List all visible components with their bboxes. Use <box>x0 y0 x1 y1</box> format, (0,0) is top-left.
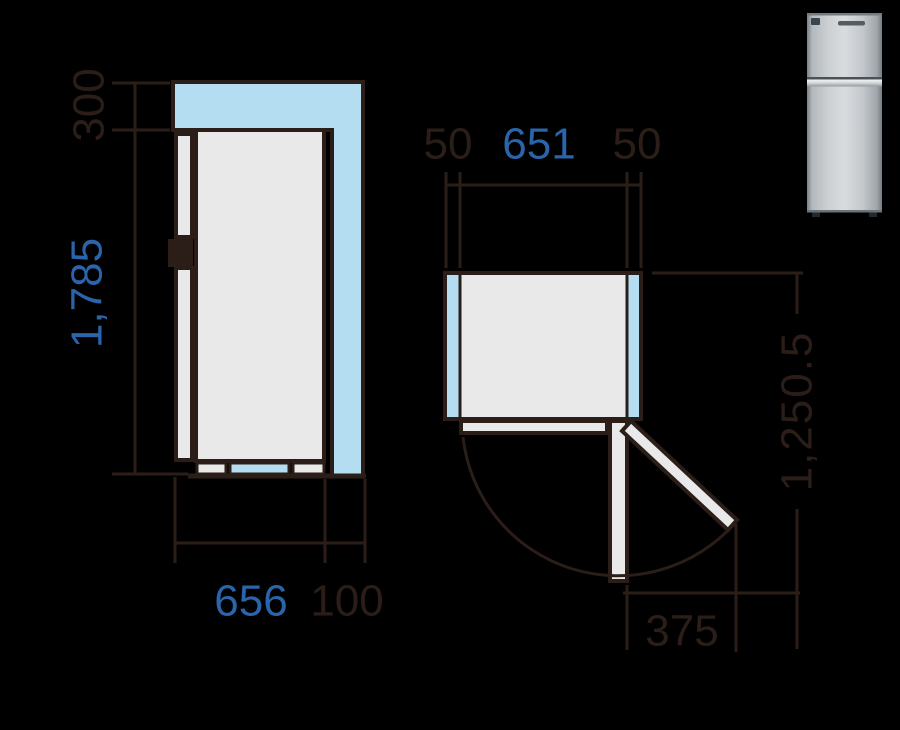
side-front-foot <box>197 463 226 474</box>
left-clearance-label: 50 <box>424 120 473 169</box>
photo-door-gap <box>807 77 882 80</box>
door-swing-label: 375 <box>645 607 718 656</box>
depth-door-open-label: 1,250.5 <box>773 331 822 492</box>
side-base-clearance <box>230 463 289 474</box>
photo-right-foot <box>869 212 877 217</box>
rear-clearance-label: 100 <box>310 577 383 626</box>
side-fridge-door <box>176 268 192 460</box>
brand-logo-mark <box>838 21 865 26</box>
plan-door-open-90 <box>610 421 627 581</box>
top-clearance-label: 300 <box>65 68 114 141</box>
right-clearance-label: 50 <box>613 120 662 169</box>
clearance-diagram-svg: 300 1,785 656 100 50 651 50 <box>0 0 900 730</box>
side-rear-foot <box>293 463 324 474</box>
height-label: 1,785 <box>63 238 112 348</box>
photo-left-foot <box>812 212 820 217</box>
plan-door-closed <box>461 421 607 433</box>
plan-cabinet-body <box>445 273 641 419</box>
side-freezer-door <box>176 134 192 237</box>
side-cabinet-body <box>196 130 324 461</box>
product-photo <box>807 13 882 217</box>
depth-label: 656 <box>214 577 287 626</box>
photo-top-edge <box>807 13 882 16</box>
plan-right-clearance-strip <box>628 275 639 417</box>
plan-left-clearance-strip <box>447 275 459 417</box>
photo-bottom-edge <box>807 210 882 213</box>
photo-fridge-door <box>807 87 882 213</box>
width-label: 651 <box>502 120 575 169</box>
diagram-canvas: 300 1,785 656 100 50 651 50 <box>0 0 900 730</box>
photo-handle-bar <box>807 80 882 87</box>
side-door-handle <box>168 239 193 267</box>
feature-logo-mark <box>811 18 820 25</box>
